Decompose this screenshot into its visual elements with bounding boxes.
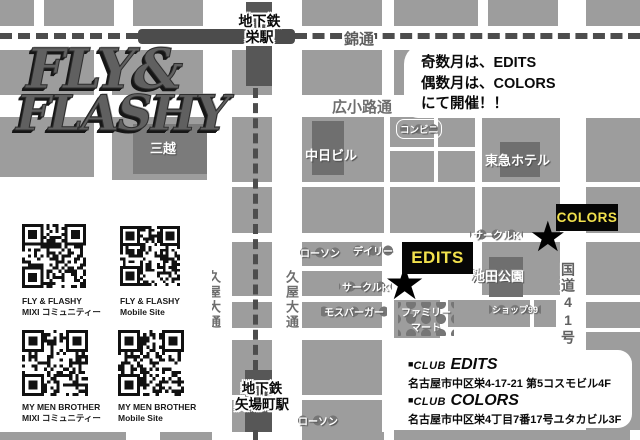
map-block bbox=[394, 0, 478, 26]
club-colors-address: 名古屋市中区栄4丁目7番17号ユタカビル3F bbox=[408, 411, 621, 427]
club-colors-title: ■CLUB COLORS bbox=[408, 392, 621, 410]
qr-caption-flyflashy-mixi: FLY & FLASHY MIXI コミュニティー bbox=[22, 296, 101, 318]
road-nishiki-label: 錦通 bbox=[344, 28, 374, 49]
qr-caption-line: MY MEN BROTHER bbox=[22, 402, 101, 413]
store-famima-line2: マート bbox=[401, 319, 451, 334]
colors-venue-box: COLORS bbox=[556, 204, 618, 231]
qr-caption-flyflashy-mobile: FLY & FLASHY Mobile Site bbox=[120, 296, 180, 318]
store-circlek-ikeda-label: サークルK bbox=[470, 225, 523, 244]
club-info-bubble: ■CLUB EDITS 名古屋市中区栄4-17-21 第5コスモビル4F ■CL… bbox=[392, 350, 632, 428]
road-hisaya-right-label: 久屋大通 bbox=[282, 270, 301, 330]
qr-caption-line: FLY & FLASHY bbox=[22, 296, 101, 307]
station-sakae-line2: 栄駅 bbox=[222, 29, 297, 45]
road-hirokoji-label: 広小路通 bbox=[332, 96, 392, 117]
qr-caption-mymenbrother-mixi: MY MEN BROTHER MIXI コミュニティー bbox=[22, 402, 101, 424]
map-block bbox=[586, 242, 640, 295]
qr-caption-line: Mobile Site bbox=[120, 307, 180, 318]
building-tokyu-label: 東急ホテル bbox=[485, 150, 550, 169]
qr-code-mymenbrother-mobile bbox=[118, 330, 184, 396]
store-lawson-yaba-label: ローソン bbox=[295, 411, 341, 430]
building-chunichi-label: 中日ビル bbox=[305, 145, 357, 164]
map-block bbox=[438, 117, 475, 147]
qr-caption-line: Mobile Site bbox=[118, 413, 196, 424]
station-rect bbox=[246, 46, 272, 86]
club-edits-address: 名古屋市中区栄4-17-21 第5コスモビル4F bbox=[408, 375, 611, 391]
map-block bbox=[160, 432, 212, 440]
map-block bbox=[302, 50, 382, 95]
map-block bbox=[394, 430, 630, 440]
club-edits-info: ■CLUB EDITS 名古屋市中区栄4-17-21 第5コスモビル4F bbox=[408, 356, 611, 391]
map-block bbox=[438, 151, 475, 182]
qr-code-mymenbrother-mixi bbox=[22, 330, 88, 396]
qr-code-flyflashy-mixi bbox=[22, 224, 86, 288]
map-block bbox=[390, 187, 475, 233]
building-ikeda-park-label: 池田公園 bbox=[472, 266, 524, 285]
map-block bbox=[586, 302, 640, 328]
station-yabacho-line2: 矢場町駅 bbox=[212, 397, 312, 413]
store-shop99-label: ショップ99 bbox=[489, 301, 541, 318]
station-sakae-line1: 地下鉄 bbox=[222, 13, 297, 29]
map-block bbox=[302, 187, 384, 233]
notice-line3: にて開催！！ bbox=[421, 94, 640, 115]
station-yabacho-line1: 地下鉄 bbox=[212, 381, 312, 397]
qr-caption-line: MIXI コミュニティー bbox=[22, 307, 101, 318]
map-block bbox=[0, 0, 34, 26]
map-block bbox=[302, 340, 382, 395]
club-colors-name: COLORS bbox=[450, 392, 518, 409]
notice-text: 奇数月は、EDITS 偶数月は、COLORS にて開催！！ bbox=[404, 44, 640, 115]
club-edits-title: ■CLUB EDITS bbox=[408, 356, 611, 374]
map-block bbox=[232, 117, 272, 182]
station-yabacho: 地下鉄 矢場町駅 bbox=[212, 381, 312, 412]
map-block bbox=[44, 0, 114, 26]
map-block bbox=[586, 0, 640, 26]
notice-bubble: 奇数月は、EDITS 偶数月は、COLORS にて開催！！ bbox=[404, 44, 640, 118]
map-block bbox=[232, 242, 272, 296]
club-word: CLUB bbox=[413, 360, 446, 372]
map-block bbox=[0, 432, 126, 440]
club-colors-info: ■CLUB COLORS 名古屋市中区栄4丁目7番17号ユタカビル3F bbox=[408, 392, 621, 427]
notice-line2: 偶数月は、COLORS bbox=[421, 74, 640, 95]
edits-venue-box: EDITS bbox=[402, 242, 473, 274]
store-mos-burger-label: モスバーガー bbox=[321, 302, 387, 321]
qr-caption-line: MIXI コミュニティー bbox=[22, 413, 101, 424]
station-sakae: 地下鉄 栄駅 bbox=[222, 13, 297, 45]
subway-dashed-line-vertical bbox=[253, 88, 258, 370]
building-mitsukoshi-label: 三越 bbox=[150, 138, 176, 157]
map-block bbox=[634, 352, 640, 430]
map-block bbox=[390, 151, 434, 182]
qr-caption-line: FLY & FLASHY bbox=[120, 296, 180, 307]
qr-code-flyflashy-mobile bbox=[120, 226, 180, 286]
map-block bbox=[302, 0, 382, 26]
flyer-map: 地下鉄 栄駅 地下鉄 矢場町駅 錦通 広小路通 久屋大通 久屋大通 国道41号 … bbox=[0, 0, 640, 440]
map-block bbox=[586, 117, 640, 182]
qr-caption-mymenbrother-mobile: MY MEN BROTHER Mobile Site bbox=[118, 402, 196, 424]
club-word: CLUB bbox=[413, 396, 446, 408]
road-route41-label: 国道41号 bbox=[558, 262, 578, 346]
map-block bbox=[488, 0, 558, 26]
store-conbini-label: コンビニ bbox=[396, 119, 442, 139]
subway-dashed-line-vertical-bottom bbox=[253, 430, 258, 440]
notice-line1: 奇数月は、EDITS bbox=[421, 53, 640, 74]
map-block bbox=[232, 187, 272, 233]
map-block bbox=[232, 302, 272, 328]
club-edits-name: EDITS bbox=[450, 356, 497, 373]
qr-panel: FLY & FLASHY MIXI コミュニティー FLY & FLASHY M… bbox=[0, 196, 212, 432]
map-block bbox=[302, 432, 384, 440]
store-lawson-sakae-label: ローソン bbox=[297, 243, 343, 262]
qr-caption-line: MY MEN BROTHER bbox=[118, 402, 196, 413]
logo-flashy: FLASHY bbox=[16, 84, 228, 142]
map-block bbox=[133, 0, 203, 26]
